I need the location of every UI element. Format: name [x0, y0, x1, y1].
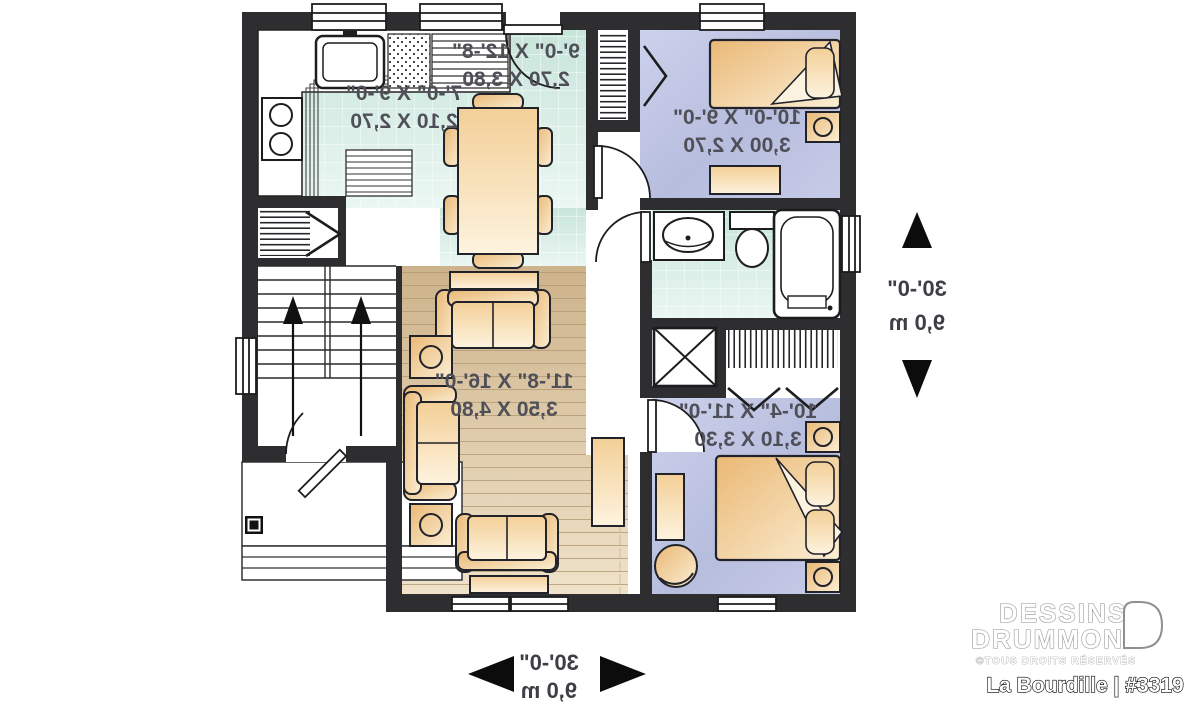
bedroom1-dim-ft: 10'-0" X 9'-0"	[673, 106, 801, 129]
dimension-right: 30'-0" 9,0 m	[887, 212, 947, 398]
pillow	[806, 48, 834, 98]
tv-cabinet	[592, 438, 624, 526]
kitchen-window	[312, 4, 386, 30]
floor-plan: 7'-0" X 9'-0" 2,10 X 2,70 9'-0" X 12'-8"…	[0, 0, 1200, 711]
loveseat-bottom	[456, 514, 558, 572]
sofa-table	[470, 576, 548, 593]
bedroom1-window	[700, 4, 764, 30]
dining-table	[458, 108, 538, 254]
drummond-d-logo-icon	[1124, 602, 1162, 648]
bedroom2-window	[718, 597, 776, 611]
living-dim-ft: 11'-8" X 16'-0"	[435, 370, 573, 393]
chair	[655, 545, 697, 587]
kitchen-dim-m: 2,10 X 2,70	[350, 110, 457, 133]
console-table	[450, 272, 538, 289]
side-dim-m: 9,0 m	[889, 310, 945, 335]
dimension-bottom: 30'-0" 9,0 m	[468, 650, 646, 703]
pillow	[806, 510, 834, 554]
bathtub	[774, 210, 840, 318]
brand-rights: ©TOUS DROITS RÉSERVÉS	[976, 654, 1136, 667]
bedroom1-dim-m: 3,00 X 2,70	[683, 134, 790, 157]
nightstand	[806, 422, 840, 452]
bedroom1-closet-hatch	[600, 34, 626, 128]
bedroom2-dim-m: 3,10 X 3,30	[694, 428, 801, 451]
porch-steps	[242, 546, 462, 580]
arrow-down-icon	[902, 360, 932, 398]
arrow-left-icon	[468, 656, 514, 692]
living-dim-m: 3,50 X 4,80	[450, 398, 557, 421]
end-table	[410, 504, 452, 546]
dining-room	[444, 94, 552, 268]
coat-closet-hatch	[260, 210, 310, 256]
pillow	[806, 462, 834, 506]
floor-plan-drawing: 7'-0" X 9'-0" 2,10 X 2,70 9'-0" X 12'-8"…	[0, 0, 1200, 711]
bathroom-window	[842, 216, 860, 272]
dresser	[710, 166, 780, 194]
bedroom2-dim-ft: 10'-4" X 11'-0"	[679, 400, 817, 423]
faucet	[343, 31, 357, 37]
bottom-dim-ft: 30'-0"	[519, 650, 579, 675]
brand-line2: DRUMMOND	[971, 624, 1144, 654]
plan-name: La Bourdille | #3319	[986, 674, 1183, 697]
arrow-right-icon	[600, 656, 646, 692]
bottom-dim-m: 9,0 m	[521, 678, 577, 703]
nightstand	[806, 562, 840, 592]
dining-dim-m: 2,70 X 3,80	[462, 68, 569, 91]
dining-window	[420, 4, 502, 30]
branding: DESSINS DRUMMOND ©TOUS DROITS RÉSERVÉS L…	[971, 598, 1183, 697]
nightstand	[806, 112, 840, 142]
loveseat-top	[436, 290, 550, 348]
side-dim-ft: 30'-0"	[887, 276, 947, 301]
dresser	[656, 474, 684, 540]
kitchen-island	[346, 150, 412, 196]
wardrobe-hatch	[728, 330, 838, 368]
arrow-up-icon	[902, 212, 932, 248]
kitchen-dim-ft: 7'-0" X 9'-0"	[346, 82, 462, 105]
stairs-window	[236, 338, 256, 394]
dining-dim-ft: 9'-0" X 12'-8"	[452, 40, 580, 63]
